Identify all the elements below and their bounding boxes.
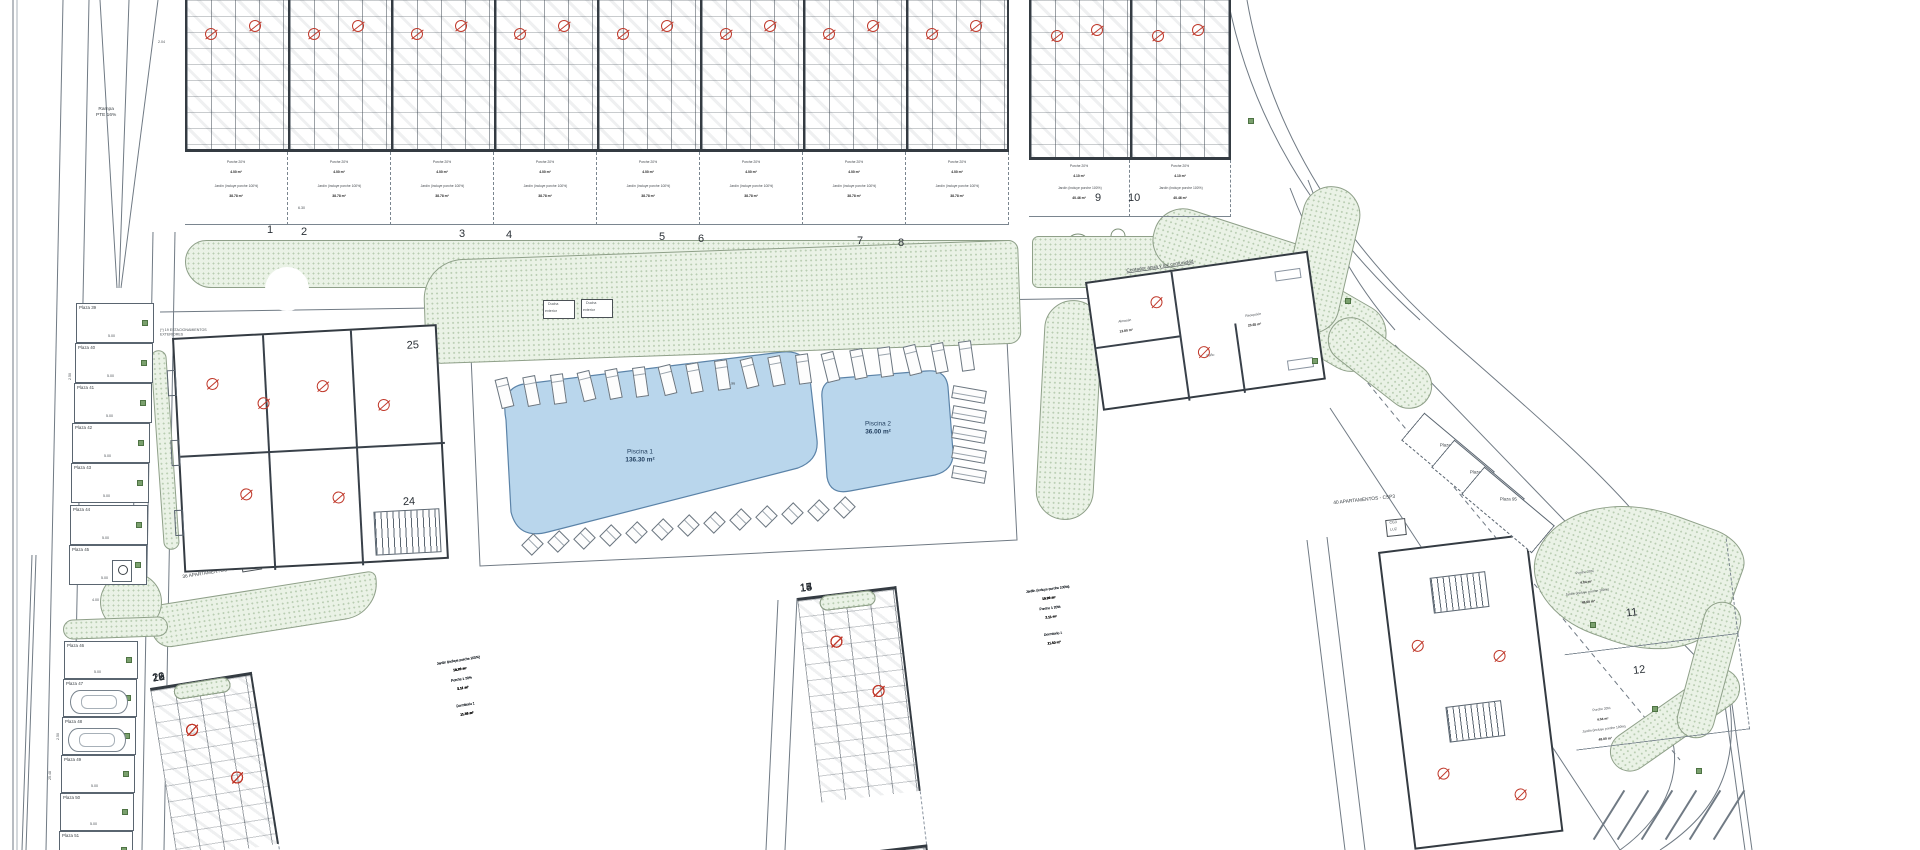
car-outline [68, 728, 126, 752]
garden-label-line: 4.00 m² [936, 170, 979, 174]
light-post-icon [122, 809, 128, 815]
light-post-icon [1248, 118, 1254, 124]
parking-stall-label: Plaza 47 [66, 681, 83, 686]
light-post-icon [1696, 768, 1702, 774]
ramp-edge [100, 0, 117, 288]
door-swing-arc [558, 20, 570, 32]
light-post-icon [138, 440, 144, 446]
plot-number: 18 [152, 671, 166, 685]
aisle-dim-label: 4.00 [92, 598, 99, 602]
garden-label-line: Porche 20% [833, 160, 876, 164]
door-swing-arc [1091, 24, 1103, 36]
garden-label-line: 38.78 m² [215, 194, 258, 198]
garden-label-line: Jardín (incluye porche 100%) [1575, 723, 1634, 734]
plot-number: 2 [301, 226, 307, 238]
parking-stall-label: Plaza 45 [72, 547, 89, 552]
luz-box-right-line2: LUZ [1390, 527, 1397, 532]
couch-symbol [1274, 268, 1301, 282]
plot-number: 4 [506, 229, 512, 241]
door-swing-arc [249, 20, 261, 32]
door-swing-arc [352, 20, 364, 32]
garden-label-line: 4.00 m² [627, 170, 670, 174]
plot-number-24: 24 [403, 496, 416, 509]
stall-width-dim: 5.00 [94, 670, 101, 674]
garden-label-line: 4.00 m² [215, 170, 258, 174]
garden-label-line: Jardín (incluye porche 100%) [1159, 186, 1201, 190]
garden-label-line: Porche 20% [215, 160, 258, 164]
garden-label-line: 38.78 m² [524, 194, 567, 198]
front-yard: Porche 20%4.00 m²Jardín (incluye porche … [391, 152, 494, 225]
site-plan-canvas: Rampa PTE 16% Piscina 1 136.30 m² Piscin… [0, 0, 1920, 850]
front-yard: Porche 20%4.00 m²Jardín (incluye porche … [494, 152, 597, 225]
garden-label-line: Porche 20% [524, 160, 567, 164]
parking-stall-label: Plaza 48 [65, 719, 82, 724]
room-label: 11.50 m² [338, 691, 595, 736]
apartment-block-24-25: 25 24 [172, 324, 449, 573]
door-swing-arc [1493, 649, 1506, 662]
garden-label-line: Jardín (incluye porche 100%) [627, 184, 670, 188]
garden-label-line: 38.78 m² [627, 194, 670, 198]
garden-label-line: 48.00 m² [1576, 733, 1635, 744]
garden-label-line: Porche 20% [730, 160, 773, 164]
stall-width-dim: 5.00 [90, 822, 97, 826]
parking-stall-label: Plaza 46 [67, 643, 84, 648]
house-unit [288, 0, 391, 152]
garden-label-line: 4.00 m² [421, 170, 464, 174]
door-swing-arc [205, 28, 217, 40]
front-yard: Porche 20%4.10 m²Jardín (incluye porche … [1130, 160, 1231, 217]
light-post-icon [126, 657, 132, 663]
garden-label-line: Porche 20% [627, 160, 670, 164]
pool-2-name: Piscina 2 [846, 420, 910, 428]
car-outline [70, 690, 128, 714]
door-swing-arc [764, 20, 776, 32]
house-unit [1029, 0, 1130, 160]
door-swing-arc [1051, 30, 1063, 42]
house-unit [185, 0, 288, 152]
parking-stall: Plaza 515.00 [59, 831, 133, 850]
plot-number: 5 [659, 231, 665, 243]
door-swing-arc [308, 28, 320, 40]
garden-label-line: Porche 20% [1058, 164, 1100, 168]
terrace-unit: 23Jardín (incluye porche 100%)10.90 m²Po… [150, 672, 288, 850]
parking-stall: Plaza 445.00 [70, 505, 148, 545]
plot-number: 13 [799, 581, 813, 594]
door-swing-arc [1150, 295, 1164, 309]
light-post-icon [141, 360, 147, 366]
parking-stall-label: Plaza 41 [77, 385, 94, 390]
front-yard: Porche 20%4.00 m²Jardín (incluye porche … [185, 152, 288, 225]
garden-label-line: Jardín (incluye porche 100%) [1058, 186, 1100, 190]
couch-symbol [1287, 357, 1314, 371]
ramp-label: Rampa PTE 16% [96, 106, 116, 118]
house-unit [700, 0, 803, 152]
door-swing-arc [1152, 30, 1164, 42]
shower-box-1-line2: exterior [545, 309, 557, 313]
garden-label-line: 4.10 m² [1159, 174, 1201, 178]
garden-label-line: Porche 20% [1159, 164, 1201, 168]
parking-stall-label: Plaza 43 [74, 465, 91, 470]
parking-stall-label: Plaza 50 [63, 795, 80, 800]
house-unit [391, 0, 494, 152]
parking-stall: Plaza 395.00 [76, 303, 154, 343]
plot-number: 7 [857, 235, 863, 247]
parking-stall-label: Plaza 44 [73, 507, 90, 512]
parking-bay-notch [265, 267, 309, 311]
stall-depth-dim-lower: 2.50 [56, 733, 60, 740]
garden-label-line: Jardín (incluye porche 100%) [215, 184, 258, 188]
door-swing-arc [377, 399, 390, 412]
door-swing-arc [455, 20, 467, 32]
garden-label-line: 40.46 m² [1159, 196, 1201, 200]
parking-stall: Plaza 505.00 [60, 793, 134, 831]
light-post-icon [136, 522, 142, 528]
light-post-icon [1312, 358, 1318, 364]
garden-label-line: Jardín (incluye porche 100%) [421, 184, 464, 188]
door-swing-arc [617, 28, 629, 40]
shower-box-2-line2: exterior [583, 308, 595, 312]
plot-number-12: 12 [1632, 664, 1646, 677]
parking-stall-label: Plaza 39 [79, 305, 96, 310]
front-yard: Porche 20%4.00 m²Jardín (incluye porche … [597, 152, 700, 225]
plots-11-12-area: 11 Porche 20% 4.04 m² Jardín (incluye po… [1553, 539, 1756, 799]
pool-1-area: 136.30 m² [608, 456, 672, 464]
pool-2-area: 36.00 m² [846, 428, 910, 436]
stall-width-dim: 5.00 [106, 414, 113, 418]
shower-box-1: Ducha exterior [543, 300, 575, 319]
stall-width-dim: 5.00 [101, 576, 108, 580]
parking-stall-label: Plaza 95 [1500, 497, 1517, 502]
garden-label-line: Porche 20% [1555, 567, 1614, 578]
parking-stall: Plaza 405.00 [75, 343, 153, 383]
garden-label-line: Jardín (incluye porche 100%) [730, 184, 773, 188]
door-swing-arc [1192, 24, 1204, 36]
door-swing-arc [1437, 767, 1450, 780]
stair-hatch [1445, 700, 1505, 743]
ramp-label-line2: PTE 16% [96, 112, 116, 118]
garden-label-line: Porche 20% [421, 160, 464, 164]
door-swing-arc [411, 28, 423, 40]
plot-number-25: 25 [406, 339, 419, 352]
pool-2-label: Piscina 2 36.00 m² [846, 420, 910, 436]
parking-stall: Plaza 495.00 [61, 755, 135, 793]
front-yard: Porche 20%4.00 m²Jardín (incluye porche … [906, 152, 1009, 225]
garden-label-line: Jardín (incluye porche 100%) [318, 184, 361, 188]
light-post-icon [135, 562, 141, 568]
parking-note: (*) 19 ESTACIONAMIENTOS EXTERIORES [160, 328, 207, 337]
garden-label-line: 4.10 m² [1058, 174, 1100, 178]
house-unit [597, 0, 700, 152]
balcony [174, 510, 184, 536]
light-post-icon [1652, 706, 1658, 712]
plot-number: 8 [898, 237, 904, 249]
garden-label-line: Porche 1 20% [333, 657, 590, 702]
corridor-wall [180, 442, 445, 458]
garden-label-line: Jardín (incluye porche 100%) [524, 184, 567, 188]
plot-12-yard: 12 Porche 20% 4.04 m² Jardín (incluye po… [1565, 634, 1750, 751]
garden-label-line: 38.78 m² [318, 194, 361, 198]
pool-1-label: Piscina 1 136.30 m² [608, 448, 672, 464]
garden-label-line: 10.90 m² [331, 647, 588, 692]
garden-label-line: 4.00 m² [524, 170, 567, 174]
garden-label-line: Porche 20% [936, 160, 979, 164]
stall-width-dim: 5.00 [107, 374, 114, 378]
door-swing-arc [1514, 788, 1527, 801]
plot-number: 3 [459, 228, 465, 240]
door-swing-arc [926, 28, 938, 40]
accessible-parking-icon [112, 560, 132, 582]
left-edge-dim: 25.48 [48, 771, 52, 780]
garden-label-line: 38.78 m² [936, 194, 979, 198]
stall-depth-dim-upper: 2.50 [68, 373, 72, 380]
garden-label-line: 48.00 m² [1559, 596, 1618, 607]
garden-label-line: 4.04 m² [1557, 577, 1616, 588]
plot-number: 10 [1128, 192, 1140, 204]
parking-stall: Plaza 425.00 [72, 423, 150, 463]
stall-width-dim: 5.00 [91, 784, 98, 788]
left-road-edge [46, 0, 63, 850]
house-unit [1130, 0, 1231, 160]
light-post-icon [142, 320, 148, 326]
house-unit [803, 0, 906, 152]
door-swing-arc [332, 491, 345, 504]
shower-box-2-line1: Ducha [586, 301, 596, 305]
door-swing-arc [240, 488, 253, 501]
pool-1-name: Piscina 1 [608, 448, 672, 456]
interior-wall [1234, 323, 1246, 393]
top-left-dim: 2.04 [158, 40, 165, 44]
parking-stall: Plaza 435.00 [71, 463, 149, 503]
door-swing-arc [661, 20, 673, 32]
door-swing-arc [720, 28, 732, 40]
door-swing-arc [514, 28, 526, 40]
green-band-left-parking [63, 616, 169, 640]
parking-stall: Plaza 415.00 [74, 383, 152, 423]
garden-label-line: 38.78 m² [833, 194, 876, 198]
garden-label-line: 38.78 m² [421, 194, 464, 198]
plot-number: 9 [1095, 192, 1101, 204]
almacen-name: Almacén [1118, 318, 1131, 324]
light-post-icon [1345, 298, 1351, 304]
parking-stall: Plaza 455.00 [69, 545, 147, 585]
shower-box-1-line1: Ducha [548, 302, 558, 306]
luz-box-right: CG3 LUZ [1385, 518, 1407, 537]
door-swing-arc [867, 20, 879, 32]
stair-hatch [1430, 571, 1490, 614]
front-yard: Porche 20%4.10 m²Jardín (incluye porche … [1029, 160, 1130, 217]
stair-hatch [373, 508, 441, 555]
light-post-icon [140, 400, 146, 406]
door-swing-arc [1411, 639, 1424, 652]
front-yard: Porche 20%4.00 m²Jardín (incluye porche … [700, 152, 803, 225]
parking-stall-label: Plaza 40 [78, 345, 95, 350]
light-post-icon [1590, 622, 1596, 628]
garden-label-line: Porche 20% [318, 160, 361, 164]
stall-width-dim: 5.00 [108, 334, 115, 338]
house-unit [906, 0, 1009, 152]
door-swing-arc [316, 380, 329, 393]
interior-wall [1096, 335, 1179, 349]
plot-number: 6 [698, 233, 704, 245]
stall-width-dim: 5.00 [102, 536, 109, 540]
door-swing-arc [970, 20, 982, 32]
door-swing-arc [823, 28, 835, 40]
front-yard: Porche 20%4.00 m²Jardín (incluye porche … [288, 152, 391, 225]
garden-label-line: 4.04 m² [1573, 714, 1632, 725]
garden-label-line: 38.78 m² [730, 194, 773, 198]
garden-label-line: 4.00 m² [318, 170, 361, 174]
light-post-icon [137, 480, 143, 486]
parking-stall: Plaza 465.00 [64, 641, 138, 679]
garden-label-line: Jardín (incluye porche 100%) [936, 184, 979, 188]
parking-stall-label: Plaza 49 [64, 757, 81, 762]
balcony [167, 370, 177, 396]
garden-label-line: 4.00 m² [833, 170, 876, 174]
recepcion-name: Recepción [1245, 312, 1261, 318]
garden-label-line: 4.00 m² [730, 170, 773, 174]
shower-box-2: Ducha exterior [581, 299, 613, 318]
garden-label-line: 40.46 m² [1058, 196, 1100, 200]
door-swing-arc [206, 378, 219, 391]
light-post-icon [123, 771, 129, 777]
plot-number: 1 [267, 224, 273, 236]
house-unit [494, 0, 597, 152]
parking-stall-label: Plaza 42 [75, 425, 92, 430]
front-yard: Porche 20%4.00 m²Jardín (incluye porche … [803, 152, 906, 225]
plot-number-11: 11 [1625, 606, 1638, 619]
garden-label-line: Jardín (incluye porche 100%) [833, 184, 876, 188]
garden-label-line: Jardín (incluye porche 100%) [1558, 587, 1617, 598]
parking-stall-label: Plaza 51 [62, 833, 79, 838]
balcony [170, 440, 180, 466]
door-swing-arc [257, 397, 270, 410]
garden-label-line: Porche 20% [1572, 704, 1631, 715]
stall-width-dim: 5.00 [103, 494, 110, 498]
stall-width-dim: 5.00 [104, 454, 111, 458]
luz-box-right-line1: CG3 [1389, 520, 1397, 525]
